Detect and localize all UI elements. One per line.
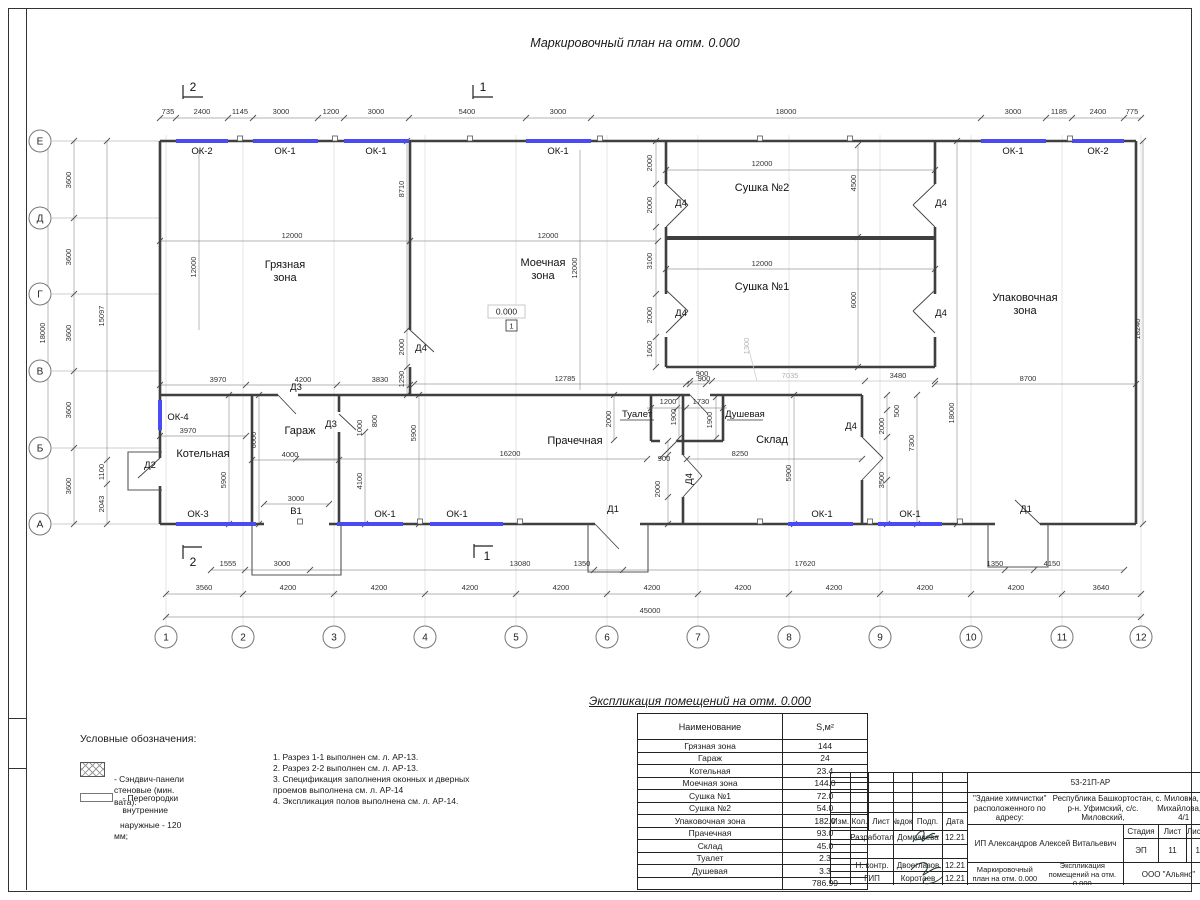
dim-label: 17620 [795, 559, 816, 568]
rev-row-cell [831, 773, 851, 783]
rev-row-cell [869, 803, 894, 813]
dim-label: 4150 [1044, 559, 1061, 568]
dim-label: 12785 [555, 374, 576, 383]
column-mark [758, 519, 763, 524]
dim-label: 1100 [97, 464, 106, 480]
level-mark: 0.000 [496, 307, 518, 317]
room-label: Моечная [520, 257, 565, 269]
rev-row-cell [831, 783, 851, 793]
rev-row-cell [943, 793, 968, 803]
axis-label-row: Г [37, 290, 43, 301]
address-cell: "Здание химчистки" расположенного по адр… [968, 793, 1200, 825]
rev-row-cell [894, 773, 913, 783]
rev-row-cell [851, 783, 869, 793]
axis-label-col: 12 [1135, 633, 1147, 644]
room-label: зона [1013, 305, 1037, 317]
rev-header-cell: Дата [943, 813, 968, 831]
dim-label: 18000 [776, 107, 797, 116]
opening-label: Д4 [415, 343, 427, 354]
axis-label-col: 6 [604, 633, 610, 644]
note-line: 3. Спецификация заполнения оконных и две… [273, 774, 533, 785]
axis-label-row: А [37, 520, 44, 531]
window-strips [160, 141, 1124, 524]
rev-header-cell: Лист [869, 813, 894, 831]
dim-label: 1300 [742, 338, 751, 355]
dim-label: 2 [190, 80, 197, 94]
dim-label: 1600 [645, 341, 654, 358]
rev-row-cell [831, 793, 851, 803]
dim-label: 2400 [194, 107, 211, 116]
dim-label: 45000 [640, 606, 661, 615]
date-cell: 12.21 [943, 831, 968, 845]
room-label: Гараж [284, 425, 316, 437]
dim-label: 12000 [570, 258, 579, 279]
axis-label-col: 2 [240, 633, 246, 644]
explication-title: Экспликация помещений на отм. 0.000 [540, 694, 860, 708]
dim-label: 3000 [550, 107, 567, 116]
opening-label: Туалет [622, 409, 653, 420]
room-label: Прачечная [547, 435, 602, 447]
axis-label-row: Е [37, 137, 44, 148]
stage-cell: ЭП [1124, 839, 1159, 863]
dim-label: 1000 [355, 420, 364, 437]
dim-label: 900 [658, 454, 671, 463]
dim-label: 12000 [752, 159, 773, 168]
dim-label: 3000 [1005, 107, 1022, 116]
company-cell: ООО "Альянс" [1124, 863, 1200, 885]
dim-label: 4200 [826, 583, 843, 592]
dim-label: 7035 [782, 371, 799, 380]
legend: Условные обозначения: - Сэндвич-панели с… [80, 733, 196, 763]
legend-item-label: - Перегородки внутренние [122, 793, 196, 816]
drawing-sheet: { "sheet": { "title": "Маркировочный пла… [0, 0, 1200, 900]
dim-label: 8700 [1020, 374, 1037, 383]
dim-label: 1290 [397, 371, 406, 388]
axis-label-col: 7 [695, 633, 701, 644]
dim-label: 3830 [372, 375, 389, 384]
date-cell: 12.21 [943, 859, 968, 872]
rev-row-cell [913, 783, 943, 793]
rev-row-cell [869, 773, 894, 783]
column-mark [238, 136, 243, 141]
sheets-header-cell: Листов [1187, 825, 1200, 839]
axis-label-col: 4 [422, 633, 428, 644]
sheet-header-cell: Лист [1159, 825, 1187, 839]
dim-label: 18000 [947, 403, 956, 424]
col-header-name: Наименование [638, 714, 783, 740]
dim-label: 6000 [249, 432, 258, 449]
opening-label: В1 [290, 506, 302, 517]
axis-label-row: Б [37, 444, 44, 455]
client-cell: ИП Александров Алексей Витальевич [968, 825, 1124, 863]
opening-label: Д2 [144, 460, 156, 471]
dim-label: 4200 [735, 583, 752, 592]
dim-label: 500 [892, 405, 901, 418]
rev-row-cell [913, 803, 943, 813]
rev-row-cell [894, 803, 913, 813]
rev-row-cell [869, 783, 894, 793]
axis-label-col: 3 [331, 633, 337, 644]
opening-label: ОК-1 [374, 509, 395, 520]
note-line: 1. Разрез 1-1 выполнен см. л. АР-13. [273, 752, 533, 763]
column-mark [298, 519, 303, 524]
opening-label: ОК-4 [167, 412, 188, 423]
opening-label: Д3 [325, 419, 337, 430]
partition-swatch [80, 793, 113, 802]
column-mark [758, 136, 763, 141]
dim-label: 2000 [653, 481, 662, 498]
dim-label: 2000 [645, 307, 654, 324]
dim-label: 3600 [64, 172, 73, 189]
sig-cell [831, 859, 851, 872]
dim-label: 4200 [371, 583, 388, 592]
room-label: Грязная [265, 259, 306, 271]
dim-label: 3000 [274, 559, 291, 568]
axis-label-col: 5 [513, 633, 519, 644]
note-line: 4. Экспликация полов выполнена см. л. АР… [273, 796, 533, 807]
dim-label: 5400 [459, 107, 476, 116]
dim-label: 2000 [604, 411, 613, 428]
dim-label: 2043 [97, 496, 106, 513]
dim-label: 3100 [645, 253, 654, 270]
dim-label: 1350 [574, 559, 591, 568]
room-label: зона [273, 272, 297, 284]
room-label: Котельная [176, 448, 229, 460]
dim-label: 7300 [907, 435, 916, 452]
room-name-cell: Грязная зона [638, 740, 783, 753]
opening-label: Душевая [725, 409, 765, 420]
rev-header-cell: №док. [894, 813, 913, 831]
sheet-no-cell: 11 [1159, 839, 1187, 863]
axis-label-row: В [37, 367, 44, 378]
dim-label: 4500 [849, 175, 858, 192]
level-index: 1 [509, 322, 513, 331]
dim-label: 4200 [644, 583, 661, 592]
dim-label: 3970 [210, 375, 227, 384]
sig-cell [831, 831, 851, 845]
room-label: Сушка №2 [735, 182, 789, 194]
rev-header-cell: Кол. [851, 813, 869, 831]
name-cell: Домрачева [894, 831, 943, 845]
dim-label: 2000 [397, 339, 406, 356]
room-area-cell: 24 [783, 752, 868, 765]
room-name-cell: Прачечная [638, 827, 783, 840]
opening-label: Д4 [845, 421, 857, 432]
dim-label: 15097 [97, 306, 106, 327]
dim-label: 8710 [397, 181, 406, 198]
dim-label: 1350 [987, 559, 1004, 568]
column-mark [333, 136, 338, 141]
axis-label-col: 1 [163, 633, 169, 644]
dim-label: 12000 [282, 231, 303, 240]
dim-label: 13080 [510, 559, 531, 568]
room-label: зона [531, 270, 555, 282]
dim-label: 2000 [877, 418, 886, 435]
dim-label: 4100 [355, 473, 364, 490]
dim-label: 12000 [189, 257, 198, 278]
rev-row-cell [851, 803, 869, 813]
rev-row-cell [851, 793, 869, 803]
column-mark [518, 519, 523, 524]
name-cell [894, 845, 943, 859]
opening-label: Д4 [675, 308, 687, 319]
dim-label: 2000 [645, 155, 654, 172]
opening-label: ОК-1 [899, 509, 920, 520]
dim-label: 4200 [462, 583, 479, 592]
sheets-no-cell: 14 [1187, 839, 1200, 863]
legend-item-partition: - Перегородки внутренние [80, 793, 196, 816]
dim-label: 3600 [64, 478, 73, 495]
dim-label: 2 [190, 555, 197, 569]
dim-label: 1200 [660, 397, 677, 406]
column-mark [468, 136, 473, 141]
dim-label: 5900 [219, 472, 228, 489]
note-line: 2. Разрез 2-2 выполнен см. л. АР-13. [273, 763, 533, 774]
dim-label: 3500 [877, 472, 886, 489]
role-cell: Разработал [851, 831, 894, 845]
dim-label: 3600 [64, 325, 73, 342]
room-name-cell: Душевая [638, 865, 783, 878]
rev-header-cell: Изм. [831, 813, 851, 831]
dim-label: 3560 [196, 583, 213, 592]
floor-plan: 0.0001ЕДГВБА1234567891011127352400114530… [0, 0, 1200, 680]
opening-label: ОК-2 [1087, 146, 1108, 157]
column-mark [418, 519, 423, 524]
total-label-cell [638, 877, 783, 890]
opening-label: ОК-1 [446, 509, 467, 520]
axis-label-row: Д [37, 214, 44, 225]
room-name-cell: Склад [638, 840, 783, 853]
room-label: Упаковочная [992, 292, 1057, 304]
dim-label: 1900 [669, 409, 678, 426]
column-mark [1068, 136, 1073, 141]
dim-label: 4000 [282, 450, 299, 459]
opening-label: Д4 [684, 473, 695, 485]
opening-label: ОК-1 [547, 146, 568, 157]
dim-label: 1 [484, 549, 491, 563]
opening-label: ОК-2 [191, 146, 212, 157]
column-mark [848, 136, 853, 141]
dim-label: 800 [370, 415, 379, 428]
role-cell: Н. контр. [851, 859, 894, 872]
dim-label: 3480 [890, 371, 907, 380]
rev-row-cell [943, 783, 968, 793]
dim-label: 5900 [784, 465, 793, 482]
opening-label: ОК-1 [1002, 146, 1023, 157]
col-header-area: S,м² [783, 714, 868, 740]
dim-label: 18000 [38, 323, 47, 344]
dim-label: 775 [1126, 107, 1139, 116]
axis-label-col: 8 [786, 633, 792, 644]
role-cell: ГИП [851, 872, 894, 885]
axis-label-col: 10 [965, 633, 977, 644]
dim-label: 1 [480, 80, 487, 94]
opening-label: ОК-1 [811, 509, 832, 520]
dim-label: 5900 [409, 425, 418, 442]
date-cell [943, 845, 968, 859]
dim-label: 6000 [849, 292, 858, 309]
dim-label: 2000 [645, 197, 654, 214]
stage-header-cell: Стадия [1124, 825, 1159, 839]
rev-row-cell [869, 793, 894, 803]
rev-row-cell [913, 793, 943, 803]
dim-label: 3000 [368, 107, 385, 116]
rev-header-cell: Подп. [913, 813, 943, 831]
dim-label: 3600 [64, 249, 73, 266]
room-name-cell: Упаковочная зона [638, 815, 783, 828]
dim-label: 1200 [323, 107, 340, 116]
rev-row-cell [831, 803, 851, 813]
dim-label: 4200 [1008, 583, 1025, 592]
dim-label: 4200 [553, 583, 570, 592]
dim-label: 3970 [180, 426, 197, 435]
room-label: Сушка №1 [735, 281, 789, 293]
opening-label: Д1 [1020, 504, 1032, 515]
sheet-title-cell: Маркировочный план на отм. 0.000Эксплика… [968, 863, 1124, 885]
dim-label: 1145 [232, 107, 248, 116]
rev-row-cell [851, 773, 869, 783]
dim-label: 900 [698, 374, 711, 383]
axis-label-col: 11 [1057, 633, 1068, 644]
doc-number-cell: 53-21П-АР [968, 773, 1200, 793]
room-name-cell: Котельная [638, 765, 783, 778]
frame-tick [8, 718, 26, 719]
rev-row-cell [943, 773, 968, 783]
notes-list: 1. Разрез 1-1 выполнен см. л. АР-13.2. Р… [273, 752, 533, 807]
opening-label: Д4 [935, 308, 947, 319]
dim-label: 16200 [500, 449, 521, 458]
role-cell [851, 845, 894, 859]
room-label: Склад [756, 434, 788, 446]
rev-row-cell [894, 793, 913, 803]
dim-label: 8250 [732, 449, 749, 458]
rev-row-cell [943, 803, 968, 813]
rev-row-cell [894, 783, 913, 793]
axis-label-col: 9 [877, 633, 883, 644]
title-block: Изм.Кол.Лист№док.Подп.ДатаРазработалДомр… [830, 772, 1200, 884]
room-name-cell: Гараж [638, 752, 783, 765]
dim-label: 18240 [1133, 319, 1142, 340]
dim-label: 3000 [288, 494, 305, 503]
dim-label: 1555 [220, 559, 237, 568]
dim-label: 4200 [280, 583, 297, 592]
opening-label: ОК-1 [274, 146, 295, 157]
room-area-cell: 144 [783, 740, 868, 753]
column-mark [598, 136, 603, 141]
column-mark [868, 519, 873, 524]
opening-label: Д3 [290, 382, 302, 393]
opening-label: Д4 [935, 198, 947, 209]
dim-label: 2400 [1090, 107, 1107, 116]
opening-label: ОК-3 [187, 509, 208, 520]
opening-label: Д4 [675, 198, 687, 209]
dim-label: 1730 [693, 397, 710, 406]
name-cell: Коротаев [894, 872, 943, 885]
table-row: Грязная зона144 [638, 740, 868, 753]
frame-tick [8, 768, 26, 769]
dim-label: 3600 [64, 402, 73, 419]
sandwich-panel-swatch [80, 762, 105, 777]
room-name-cell: Сушка №1 [638, 790, 783, 803]
dim-label: 735 [162, 107, 175, 116]
dim-label: 12000 [752, 259, 773, 268]
column-mark [958, 519, 963, 524]
room-name-cell: Моечная зона [638, 777, 783, 790]
sig-cell [831, 872, 851, 885]
dim-label: 12000 [538, 231, 559, 240]
dim-label: 3000 [273, 107, 290, 116]
room-name-cell: Сушка №2 [638, 802, 783, 815]
dim-label: 1185 [1051, 107, 1067, 116]
dim-label: 1900 [705, 412, 714, 429]
dim-label: 4200 [917, 583, 934, 592]
dim-label: 3640 [1093, 583, 1110, 592]
sig-cell [831, 845, 851, 859]
opening-label: Д1 [607, 504, 619, 515]
room-name-cell: Туалет [638, 852, 783, 865]
legend-title: Условные обозначения: [80, 733, 196, 745]
rev-row-cell [913, 773, 943, 783]
note-line: проемов выполнена см. л. АР-14 [273, 785, 533, 796]
date-cell: 12.21 [943, 872, 968, 885]
table-row: Гараж24 [638, 752, 868, 765]
opening-label: ОК-1 [365, 146, 386, 157]
name-cell: Двоеглазов [894, 859, 943, 872]
